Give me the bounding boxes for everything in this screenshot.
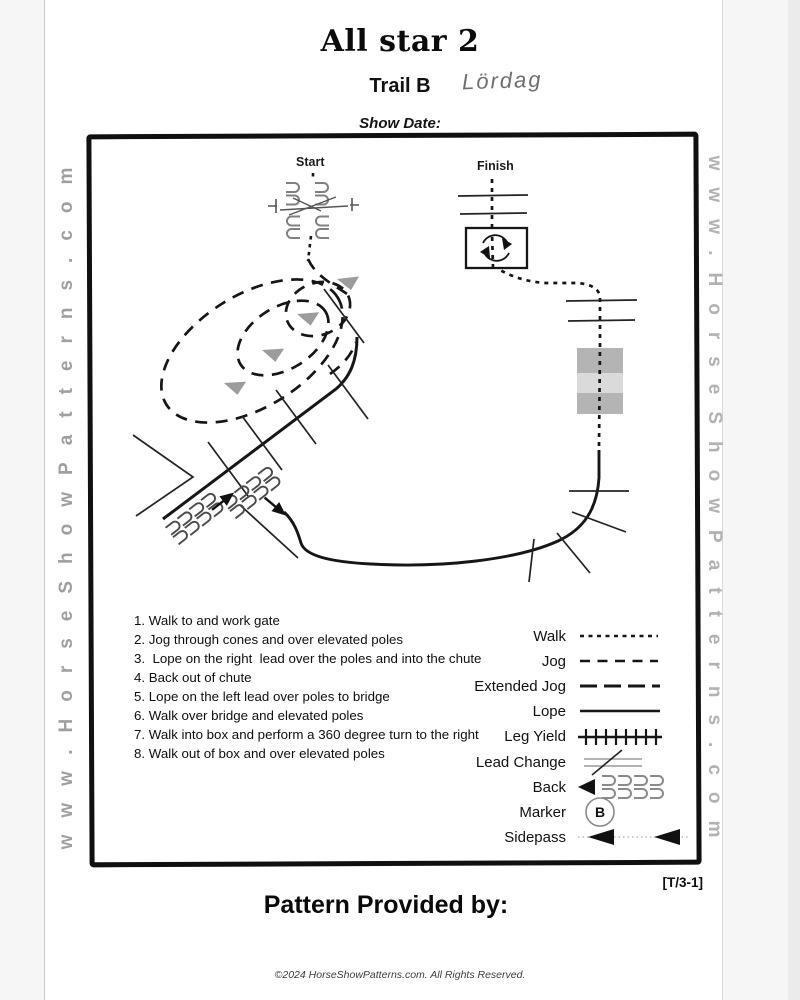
marker-symbol: B <box>578 800 694 825</box>
legend-row-sidepass: Sidepass <box>420 825 694 850</box>
leg-yield-symbol <box>578 724 694 749</box>
legend-label: Jog <box>420 653 578 670</box>
watermark-left: www.HorseShowPatterns.com <box>56 151 78 850</box>
page-title: All star 2 <box>0 24 800 59</box>
page-edge-shadow <box>788 0 800 1000</box>
legend-label: Extended Jog <box>420 678 578 695</box>
legend-label: Sidepass <box>420 829 578 846</box>
pattern-provided-heading: Pattern Provided by: <box>0 891 786 920</box>
back-symbol <box>578 775 694 800</box>
legend-row-walk: Walk <box>420 624 694 649</box>
lead-change-symbol <box>578 750 694 775</box>
start-label: Start <box>296 155 324 169</box>
sidepass-symbol <box>578 825 694 850</box>
page-margin-left <box>0 0 45 1000</box>
legend-label: Back <box>420 779 578 796</box>
walk-line-symbol <box>578 624 694 649</box>
gait-legend: Walk Jog Extended Jog Lope Leg Yield <box>420 624 694 850</box>
legend-row-lope: Lope <box>420 699 694 724</box>
lope-line-symbol <box>578 699 694 724</box>
pattern-sheet: www.HorseShowPatterns.com www.HorseShowP… <box>0 0 800 1000</box>
copyright-line: ©2024 HorseShowPatterns.com. All Rights … <box>0 969 800 981</box>
legend-row-extended-jog: Extended Jog <box>420 674 694 699</box>
extended-jog-line-symbol <box>578 674 694 699</box>
legend-label: Lope <box>420 703 578 720</box>
legend-label: Lead Change <box>420 754 578 771</box>
watermark-right: www.HorseShowPatterns.com <box>703 156 725 855</box>
legend-row-back: Back <box>420 775 694 800</box>
jog-line-symbol <box>578 649 694 674</box>
legend-row-marker: Marker B <box>420 800 694 825</box>
marker-letter: B <box>595 804 605 820</box>
legend-row-leg-yield: Leg Yield <box>420 724 694 749</box>
legend-row-jog: Jog <box>420 649 694 674</box>
page-subtitle: Trail B <box>0 75 800 98</box>
legend-label: Leg Yield <box>420 728 578 745</box>
handwritten-note: Lördag <box>462 67 543 96</box>
show-date-label: Show Date: <box>0 115 800 132</box>
legend-row-lead-change: Lead Change <box>420 749 694 774</box>
pattern-code: [T/3-1] <box>663 875 704 890</box>
legend-label: Marker <box>420 804 578 821</box>
legend-label: Walk <box>420 628 578 645</box>
finish-label: Finish <box>477 159 514 173</box>
